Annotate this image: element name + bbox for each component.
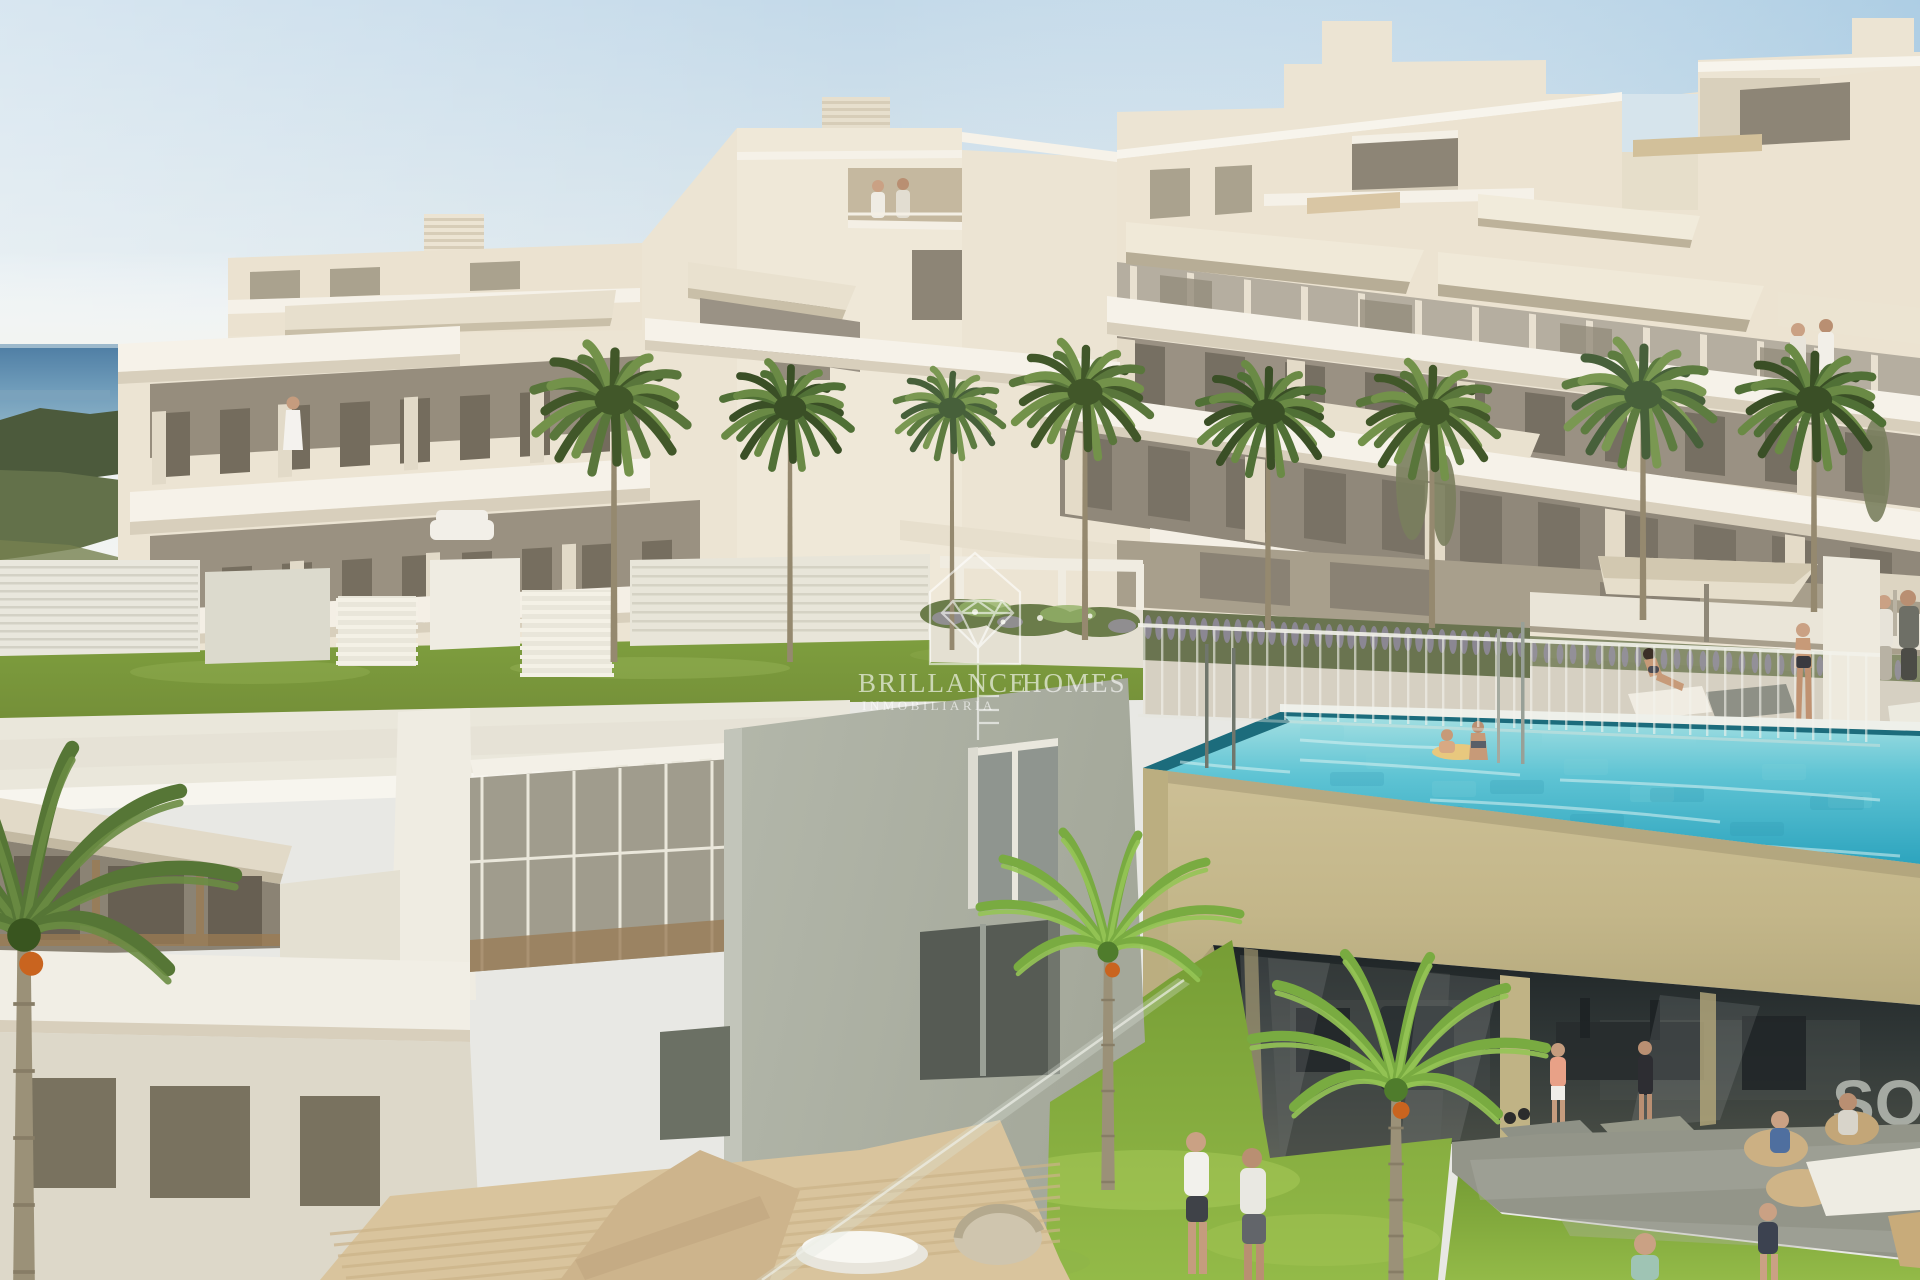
- svg-text:BRILLANCE: BRILLANCE: [858, 668, 1028, 698]
- svg-text:INMOBILIARIA: INMOBILIARIA: [862, 698, 996, 713]
- svg-text:HOMES: HOMES: [1022, 668, 1127, 698]
